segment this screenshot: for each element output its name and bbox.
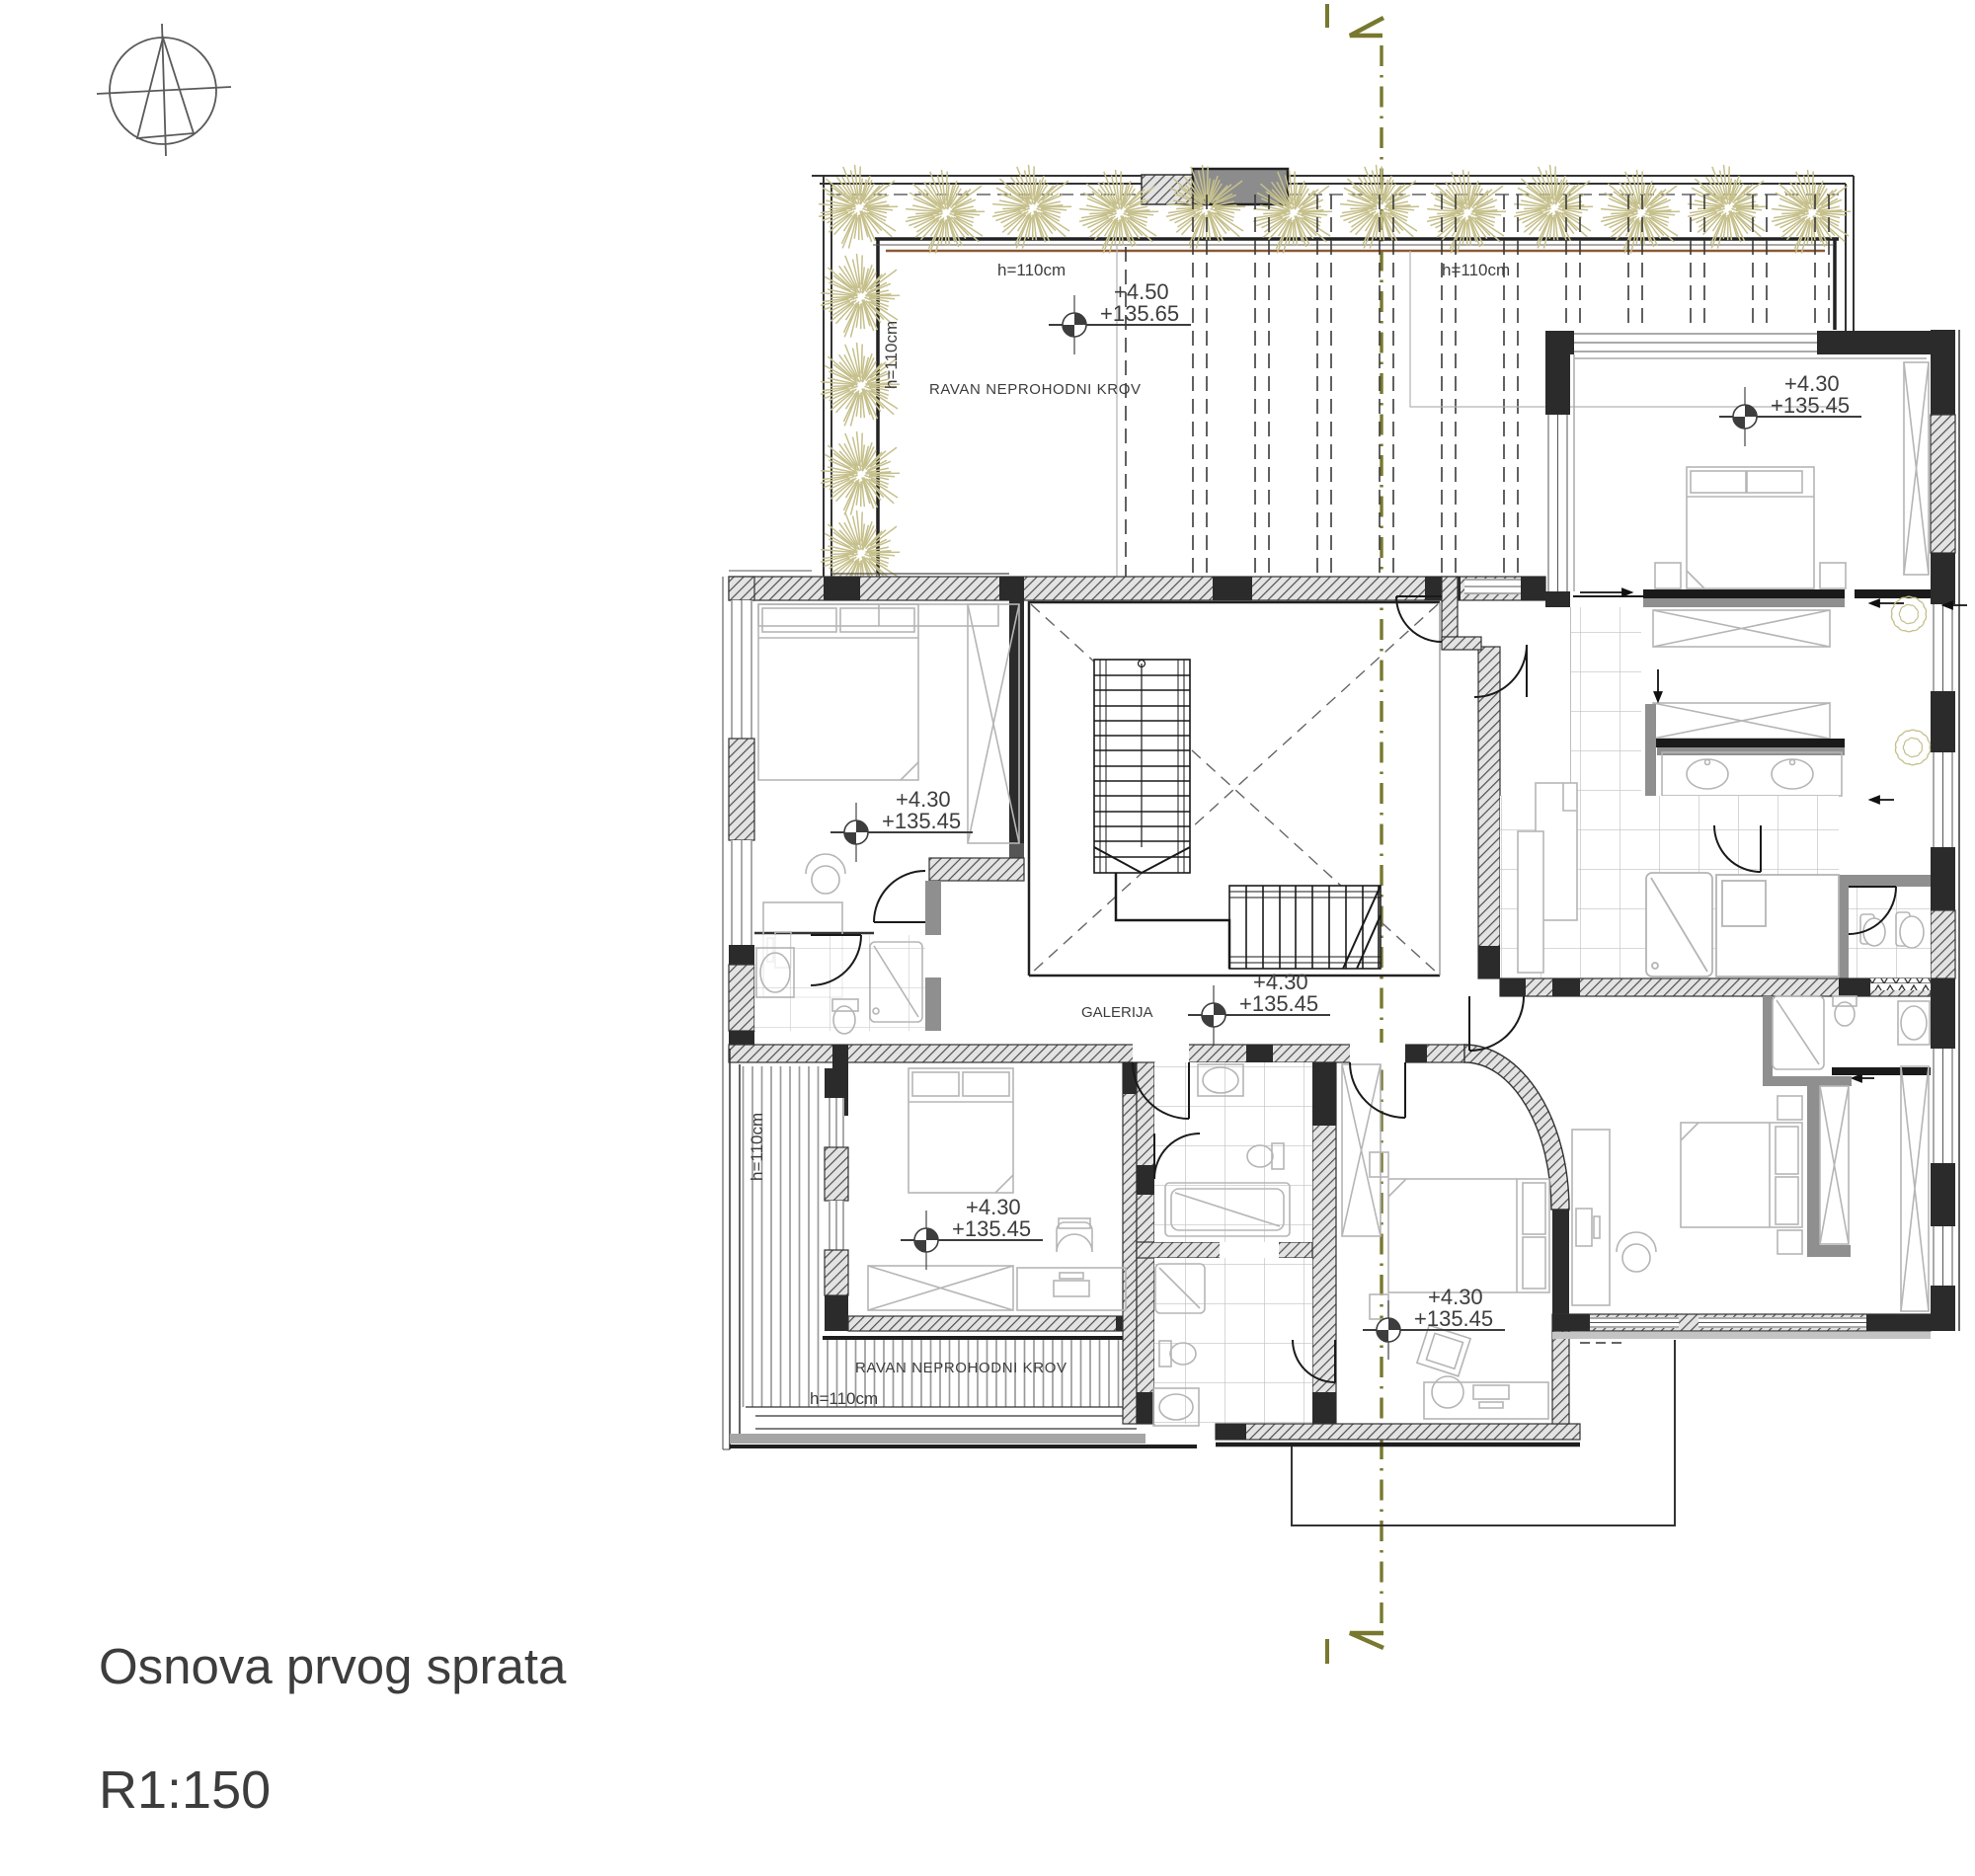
svg-text:+135.45: +135.45	[1771, 393, 1850, 418]
svg-text:+135.45: +135.45	[1414, 1306, 1493, 1331]
svg-text:RAVAN NEPROHODNI KROV: RAVAN NEPROHODNI KROV	[929, 381, 1142, 398]
svg-text:h=110cm: h=110cm	[997, 261, 1066, 279]
svg-text:+135.65: +135.65	[1100, 301, 1179, 326]
svg-text:RAVAN NEPROHODNI KROV: RAVAN NEPROHODNI KROV	[855, 1360, 1067, 1376]
svg-text:h=110cm: h=110cm	[748, 1113, 766, 1181]
svg-text:GALERIJA: GALERIJA	[1081, 1004, 1153, 1021]
svg-text:h=110cm: h=110cm	[1442, 261, 1510, 279]
svg-text:+135.45: +135.45	[882, 809, 961, 833]
svg-text:+135.45: +135.45	[1239, 991, 1318, 1016]
svg-text:R1:150: R1:150	[99, 1760, 271, 1820]
svg-text:h=110cm: h=110cm	[810, 1389, 878, 1408]
svg-text:+135.45: +135.45	[952, 1216, 1031, 1241]
svg-text:Osnova prvog sprata: Osnova prvog sprata	[99, 1638, 567, 1694]
svg-text:h=110cm: h=110cm	[882, 321, 901, 389]
